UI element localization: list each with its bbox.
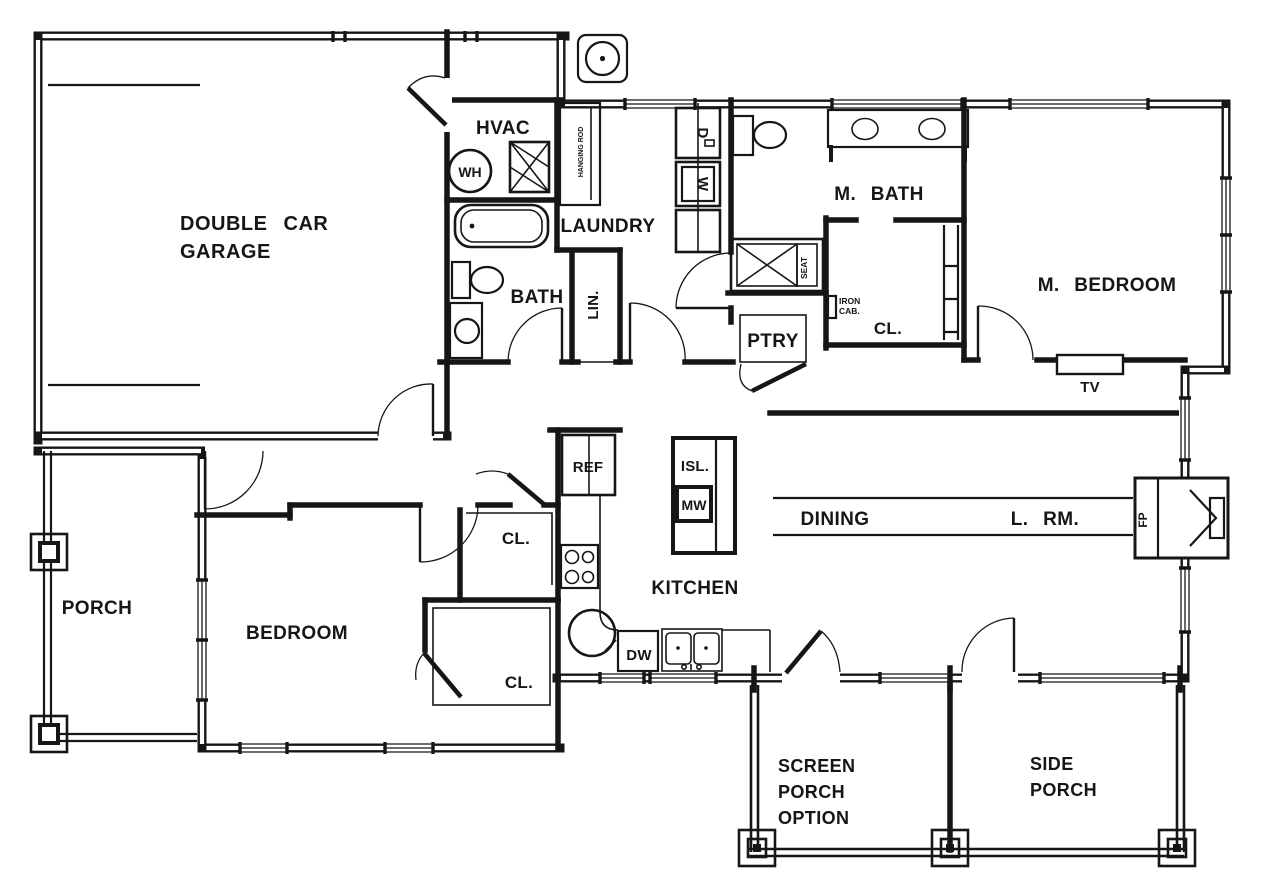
doors [205,76,1033,697]
fireplace-label: FP [1136,512,1150,527]
microwave-label: MW [682,497,708,513]
side-porch-label-line2: PORCH [1030,780,1097,800]
master-bedroom-label: M. BEDROOM [1038,275,1177,296]
porch-label: PORCH [62,598,133,619]
screen-porch-label-line1: SCREEN [778,756,855,776]
bath-vanity-icon [450,303,482,358]
laundry-label: LAUNDRY [561,216,656,237]
hanging-rod-label: HANGING ROD [578,127,585,178]
water-heater-label: WH [458,164,481,180]
bedroom-label: BEDROOM [246,623,348,644]
hvac-unit-icon [510,142,549,192]
hvac-label: HVAC [476,118,530,139]
master-closet-label: CL. [874,319,902,338]
floor-plan: DOUBLE CAR GARAGE HVAC WH LAUNDRY HANGIN… [0,0,1276,874]
garage-label-line1: DOUBLE CAR [180,213,328,235]
island-label: ISL. [681,458,709,475]
garage-label-line2: GARAGE [180,241,271,263]
side-porch-label-line1: SIDE [1030,754,1074,774]
bathtub-icon [455,205,548,247]
washer-label: W [694,177,711,192]
master-vanity-icon [828,110,968,160]
dishwasher-label: DW [626,647,652,664]
closet-interiors [433,513,552,705]
bath-label: BATH [511,287,564,308]
iron-cab-label-line2: CAB. [839,306,860,316]
garage-door-tracks [48,85,200,385]
dining-label: DINING [801,509,870,530]
stove-icon [561,545,598,588]
kitchen-island [673,438,735,553]
exhaust-fan-icon [578,35,627,82]
master-toilet-icon [733,116,786,155]
seat-label: SEAT [799,256,809,279]
exterior-walls [38,36,1226,748]
screen-porch-label-line2: PORCH [778,782,845,802]
screen-porch-label-line3: OPTION [778,808,849,828]
room-labels: DOUBLE CAR GARAGE HVAC WH LAUNDRY HANGIN… [62,118,1177,828]
kitchen-label: KITCHEN [651,578,738,599]
corner-sink-icon [569,610,616,656]
toilet-icon [452,262,503,298]
front-porch-rails [44,451,197,741]
double-sink-icon [662,629,722,671]
shower-icon [731,239,823,291]
pantry-label: PTRY [747,331,799,352]
closet-lower-label: CL. [505,673,533,692]
master-bath-label: M. BATH [834,184,924,205]
door-openings [205,78,1018,685]
iron-cab-label-line1: IRON [839,296,860,306]
living-room-label: L. RM. [1011,509,1079,530]
iron-cabinet-icon [828,296,836,318]
interior-walls [197,32,1185,850]
refrigerator-label: REF [573,459,604,476]
closet-shelving [944,225,958,340]
closet-upper-label: CL. [502,529,530,548]
tv-niche [1057,355,1123,374]
tv-label: TV [1080,379,1100,396]
linen-label: LIN. [585,290,602,319]
porch-post-icon [31,534,67,752]
dryer-label: D [694,127,711,138]
